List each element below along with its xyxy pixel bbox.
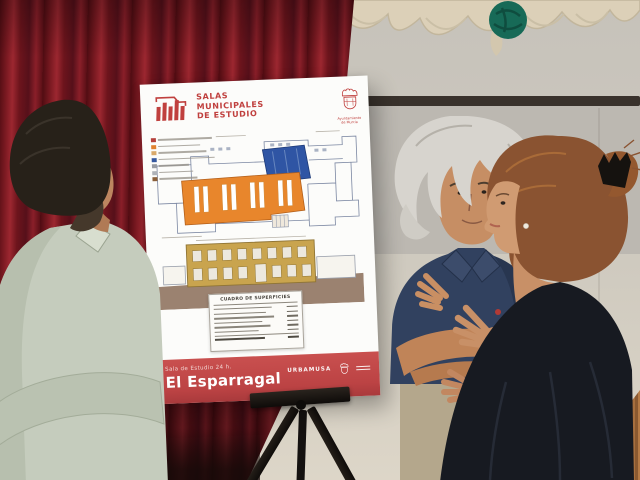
projection-screen-bar [336,96,640,106]
grey-man-belt [400,368,532,384]
grey-man-left-hand-fingers [418,276,446,308]
table-label-line [215,330,259,333]
woman-palm-upper [483,327,505,349]
legend-label-line [158,144,200,147]
legend-label-line [158,150,206,154]
legend-label-line [159,156,215,160]
table-value-line [287,306,298,308]
legend-label-line [159,177,197,180]
elevation-facade [186,240,316,287]
woman-watch [484,371,497,390]
poster-title-line3: DE ESTUDIO [197,109,265,121]
legend-swatch [152,177,157,181]
polo-chest-logo [495,309,501,315]
facade-door [255,264,267,282]
salas-municipales-logo [152,93,191,125]
belt-buckle [458,370,472,382]
floor-shadow [0,428,260,480]
legend-swatch [152,158,157,162]
grey-man-trousers [400,384,534,480]
surface-table: CUADRO DE SUPERFICIES [208,290,304,352]
legend-label-line [159,170,193,173]
woman-fingers-lower [444,372,470,400]
easel-leg-center [296,410,307,480]
woman-fingers-upper [456,308,498,356]
elevation-side-left [163,266,186,285]
footer-logos: URBAMUSA [287,361,370,378]
legend-swatch [151,145,156,149]
rosette [489,1,527,39]
woman-forearm-lower [492,367,550,392]
legend-item [152,174,228,181]
legend-swatch [152,164,157,168]
trouser-creases [462,392,502,480]
plan-legend [151,135,229,184]
plan-stairs [272,215,288,228]
woman-upper-arm [494,290,546,344]
legend-swatch [151,138,156,142]
elevation-side-right [317,255,356,279]
woman-neck-chest [513,252,560,322]
bunting-swags [336,0,640,35]
murcia-logo-text-lines [356,366,370,371]
surface-table-rows [214,304,299,342]
easel-clamp-knob [296,400,306,410]
photo-scene: SALAS MUNICIPALES DE ESTUDIO Ayuntamient… [0,0,640,480]
legend-swatch [152,171,157,175]
table-value-line [288,336,299,338]
wood-floor [566,390,640,480]
urbamusa-logo: URBAMUSA [287,366,331,374]
grey-man-polo [390,248,542,384]
murcia-shield-white-icon [338,362,350,376]
table-value-line [287,310,298,312]
bunting-garland [336,0,640,64]
polo-collar-right [472,250,500,282]
grey-man-forearm-upper [396,329,536,376]
polo-collar-left [442,250,472,282]
grey-man-forearm-lower [410,361,526,386]
table-value-line [287,319,298,321]
table-value-line [287,324,298,326]
legend-label-line [158,137,212,141]
woman-palm-lower [465,379,483,397]
table-label-line [215,337,265,341]
murcia-shield-icon [337,86,360,113]
polo-shadow [494,256,542,384]
municipality-block: Ayuntamiento de Murcia [336,86,361,126]
footer-title: El Esparragal [165,369,281,392]
table-value-line [287,315,298,317]
wall-corner-line [598,108,600,480]
legend-label-line [159,164,189,167]
poster-title: SALAS MUNICIPALES DE ESTUDIO [196,90,264,121]
easel-leg-right [307,406,361,480]
projection-screen [336,104,640,254]
legend-swatch [151,151,156,155]
table-value-line [288,329,299,331]
poster-board: SALAS MUNICIPALES DE ESTUDIO Ayuntamient… [140,76,381,405]
